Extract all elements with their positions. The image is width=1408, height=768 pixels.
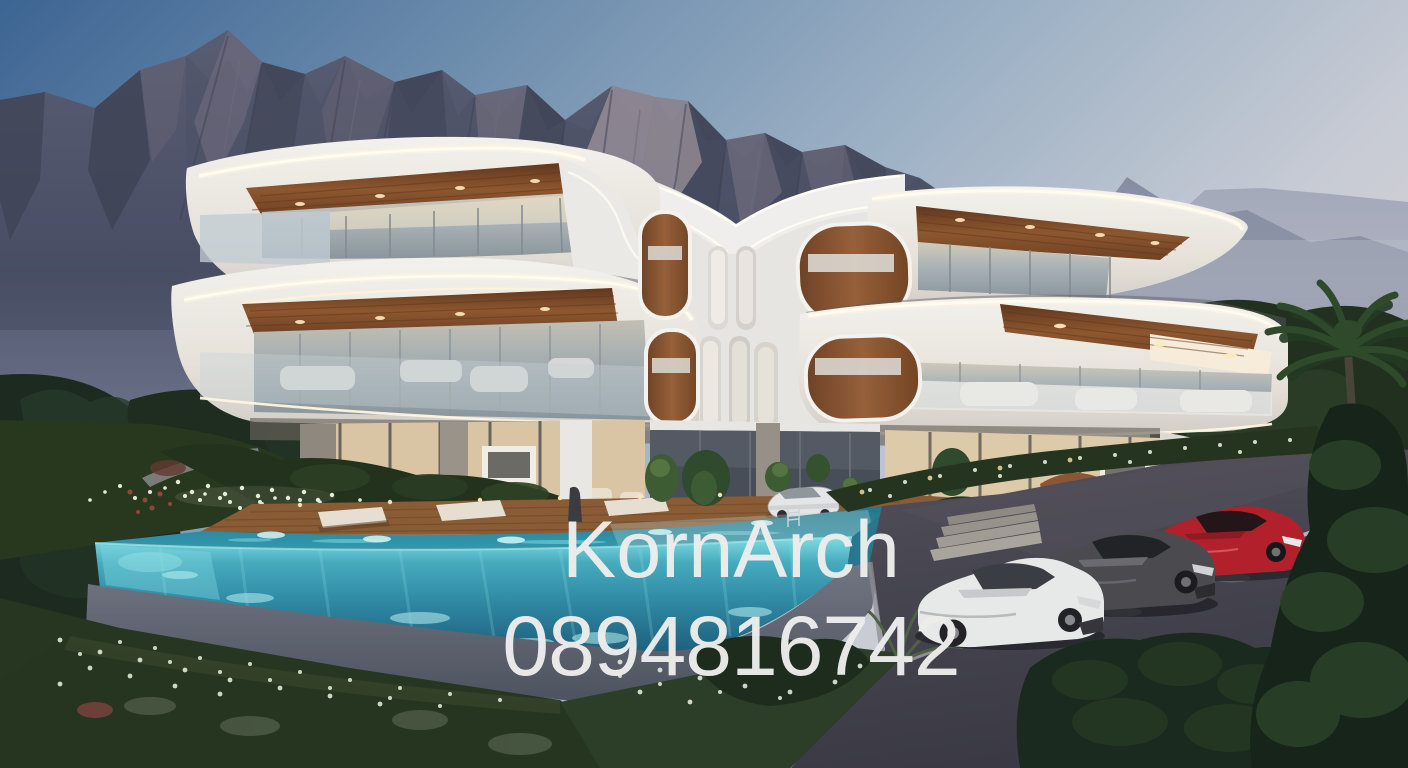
- svg-text:KornArch: KornArch: [562, 505, 900, 595]
- svg-text:0894816742: 0894816742: [502, 599, 959, 693]
